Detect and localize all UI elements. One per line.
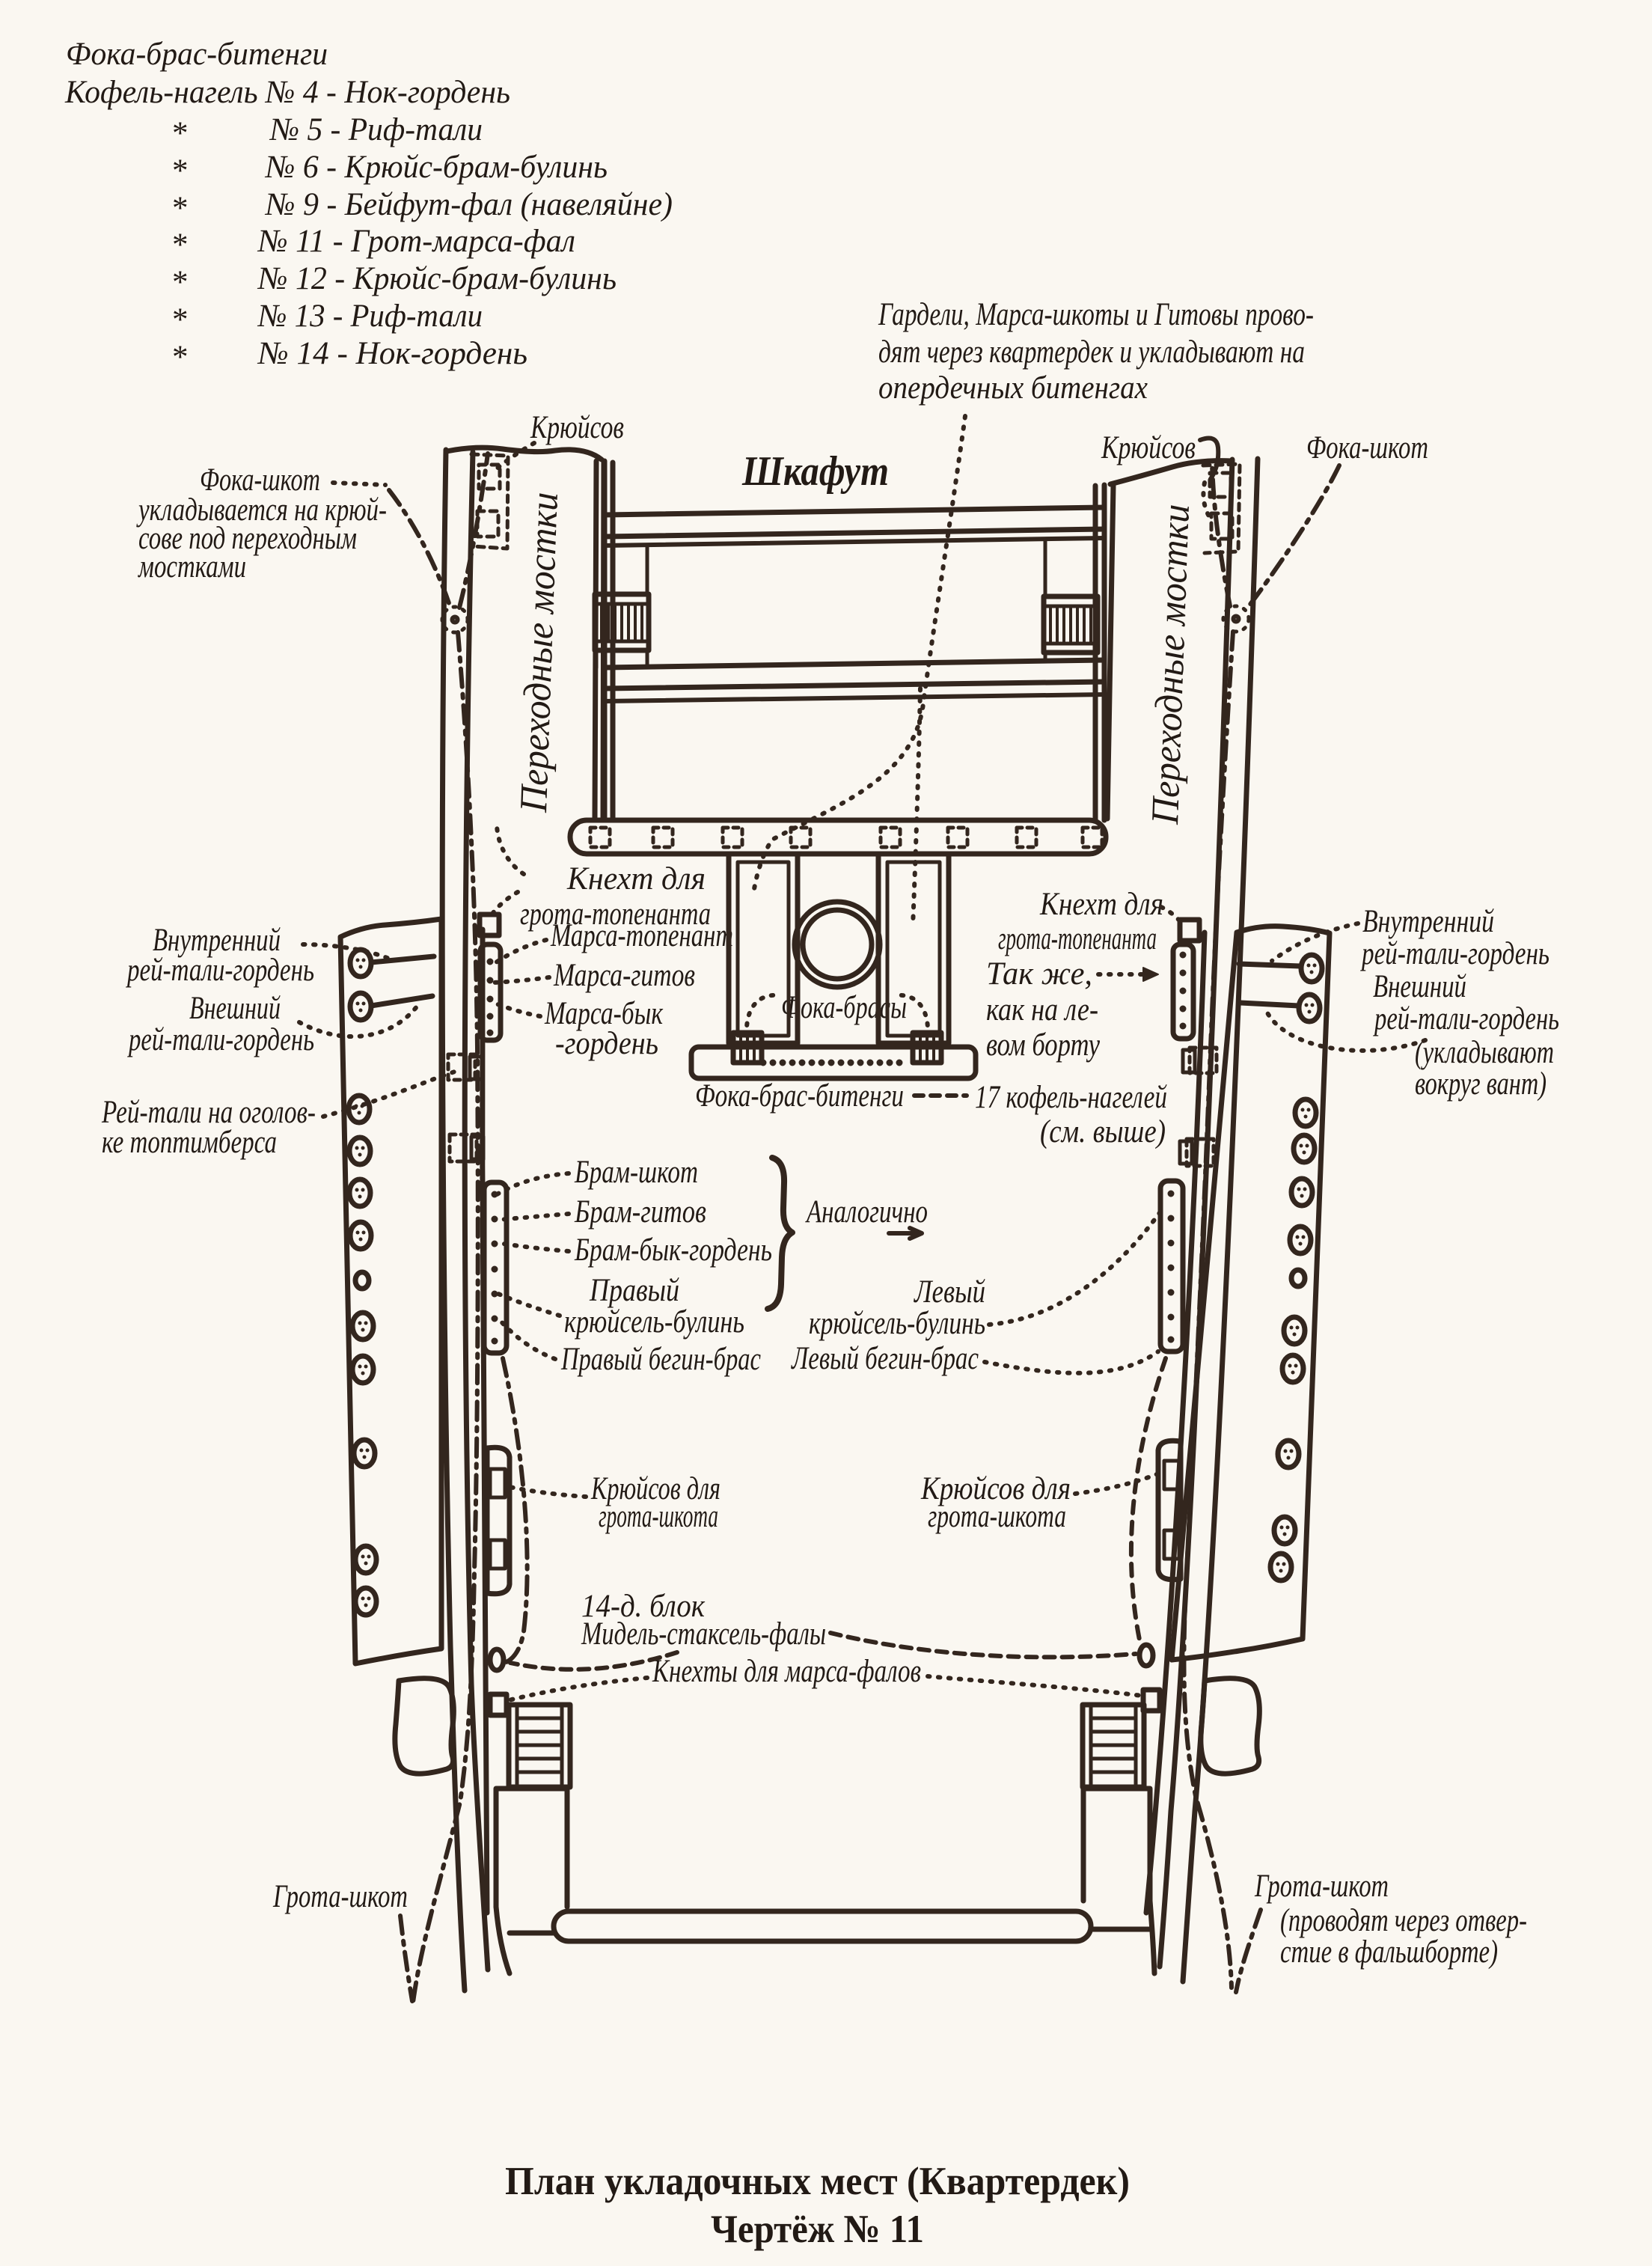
svg-text:Брам-бык-гордень: Брам-бык-гордень bbox=[574, 1233, 772, 1268]
svg-text:вом борту: вом борту bbox=[986, 1027, 1101, 1063]
svg-text:Левый бегин-брас: Левый бегин-брас bbox=[790, 1341, 979, 1376]
svg-text:Кнехты для марса-фалов: Кнехты для марса-фалов bbox=[652, 1654, 921, 1689]
svg-text:Фока-шкот: Фока-шкот bbox=[1306, 430, 1428, 465]
svg-text:Кнехт для: Кнехт для bbox=[566, 861, 706, 897]
svg-text:*: * bbox=[171, 227, 187, 263]
svg-text:как на ле-: как на ле- bbox=[986, 992, 1098, 1027]
svg-text:Так же,: Так же, bbox=[986, 956, 1092, 992]
svg-text:Грота-шкот: Грота-шкот bbox=[272, 1879, 408, 1914]
svg-text:Брам-гитов: Брам-гитов bbox=[574, 1194, 706, 1230]
svg-text:ке топтимберса: ке топтимберса bbox=[102, 1125, 277, 1160]
svg-text:Марса-топенант: Марса-топенант bbox=[550, 918, 733, 953]
svg-text:грота-топенанта: грота-топенанта bbox=[998, 921, 1157, 956]
svg-text:*: * bbox=[171, 153, 187, 189]
svg-text:(проводят через отвер-: (проводят через отвер- bbox=[1280, 1903, 1527, 1938]
svg-text:стие в фальшборте): стие в фальшборте) bbox=[1280, 1934, 1498, 1970]
svg-text:Мидель-стаксель-фалы: Мидель-стаксель-фалы bbox=[581, 1616, 826, 1652]
svg-text:*: * bbox=[171, 116, 187, 151]
svg-text:грота-шкота: грота-шкота bbox=[599, 1499, 718, 1534]
svg-text:(см. выше): (см. выше) bbox=[1040, 1114, 1166, 1149]
svg-text:рей-тали-гордень: рей-тали-гордень bbox=[1373, 1001, 1559, 1036]
svg-text:Крюйсов: Крюйсов bbox=[530, 410, 624, 445]
svg-text:Кнехт для: Кнехт для bbox=[1039, 887, 1163, 922]
svg-text:крюйсель-булинь: крюйсель-булинь bbox=[809, 1306, 985, 1341]
svg-text:*: * bbox=[171, 191, 187, 226]
svg-text:Фока-брас-битенги: Фока-брас-битенги bbox=[695, 1078, 904, 1114]
svg-text:Кофель-нагель № 4 - Нок-горден: Кофель-нагель № 4 - Нок-гордень bbox=[64, 75, 510, 110]
svg-text:Чертёж № 11: Чертёж № 11 bbox=[711, 2208, 924, 2251]
svg-text:Гардели, Марса-шкоты и Гитовы: Гардели, Марса-шкоты и Гитовы прово- bbox=[878, 297, 1314, 332]
svg-text:Грота-шкот: Грота-шкот bbox=[1254, 1869, 1389, 1904]
svg-text:№ 11 - Грот-марса-фал: № 11 - Грот-марса-фал bbox=[257, 224, 575, 259]
svg-text:рей-тали-гордень: рей-тали-гордень bbox=[1360, 936, 1549, 971]
svg-text:Фока-брас-битенги: Фока-брас-битенги bbox=[66, 37, 328, 72]
svg-text:грота-шкота: грота-шкота bbox=[928, 1499, 1066, 1534]
svg-text:рей-тали-гордень: рей-тали-гордень bbox=[127, 1022, 314, 1057]
svg-text:Марса-гитов: Марса-гитов bbox=[553, 958, 695, 993]
svg-text:*: * bbox=[171, 302, 187, 338]
svg-text:План укладочных мест (Квартерд: План укладочных мест (Квартердек) bbox=[505, 2160, 1130, 2203]
svg-text:№ 9 - Бейфут-фал (навеляйне): № 9 - Бейфут-фал (навеляйне) bbox=[264, 187, 673, 222]
svg-text:рей-тали-гордень: рей-тали-гордень bbox=[126, 953, 314, 988]
svg-text:(укладывают: (укладывают bbox=[1415, 1035, 1554, 1070]
svg-text:Левый: Левый bbox=[913, 1274, 985, 1310]
svg-text:*: * bbox=[171, 340, 187, 375]
svg-text:крюйсель-булинь: крюйсель-булинь bbox=[564, 1304, 744, 1340]
svg-text:Шкафут: Шкафут bbox=[741, 448, 889, 495]
svg-text:-гордень: -гордень bbox=[555, 1026, 658, 1061]
svg-text:мостками: мостками bbox=[137, 549, 246, 584]
svg-text:Правый бегин-брас: Правый бегин-брас bbox=[560, 1342, 761, 1377]
svg-text:17 кофель-нагелей: 17 кофель-нагелей bbox=[975, 1080, 1167, 1115]
svg-text:Правый: Правый bbox=[589, 1273, 679, 1308]
svg-text:№ 6 - Крюйс-брам-булинь: № 6 - Крюйс-брам-булинь bbox=[264, 150, 608, 185]
svg-text:№ 5 - Риф-тали: № 5 - Риф-тали bbox=[269, 112, 483, 147]
svg-text:дят через квартердек и укладыв: дят через квартердек и укладывают на bbox=[878, 335, 1305, 370]
svg-text:№ 14 - Нок-гордень: № 14 - Нок-гордень bbox=[257, 336, 527, 371]
svg-text:опердечных битенгах: опердечных битенгах bbox=[878, 370, 1148, 406]
svg-text:Внешний: Внешний bbox=[1373, 969, 1466, 1004]
svg-text:Аналогично: Аналогично bbox=[805, 1194, 928, 1230]
svg-text:Брам-шкот: Брам-шкот bbox=[574, 1155, 698, 1190]
svg-text:*: * bbox=[171, 265, 187, 300]
svg-text:вокруг вант): вокруг вант) bbox=[1415, 1066, 1547, 1102]
svg-text:Внутренний: Внутренний bbox=[1362, 904, 1494, 939]
svg-text:Крюйсов: Крюйсов bbox=[1101, 430, 1196, 465]
svg-text:№ 12 - Крюйс-брам-булинь: № 12 - Крюйс-брам-булинь bbox=[257, 261, 617, 296]
svg-text:№ 13 - Риф-тали: № 13 - Риф-тали bbox=[257, 299, 483, 334]
svg-text:Внешний: Внешний bbox=[189, 991, 281, 1026]
